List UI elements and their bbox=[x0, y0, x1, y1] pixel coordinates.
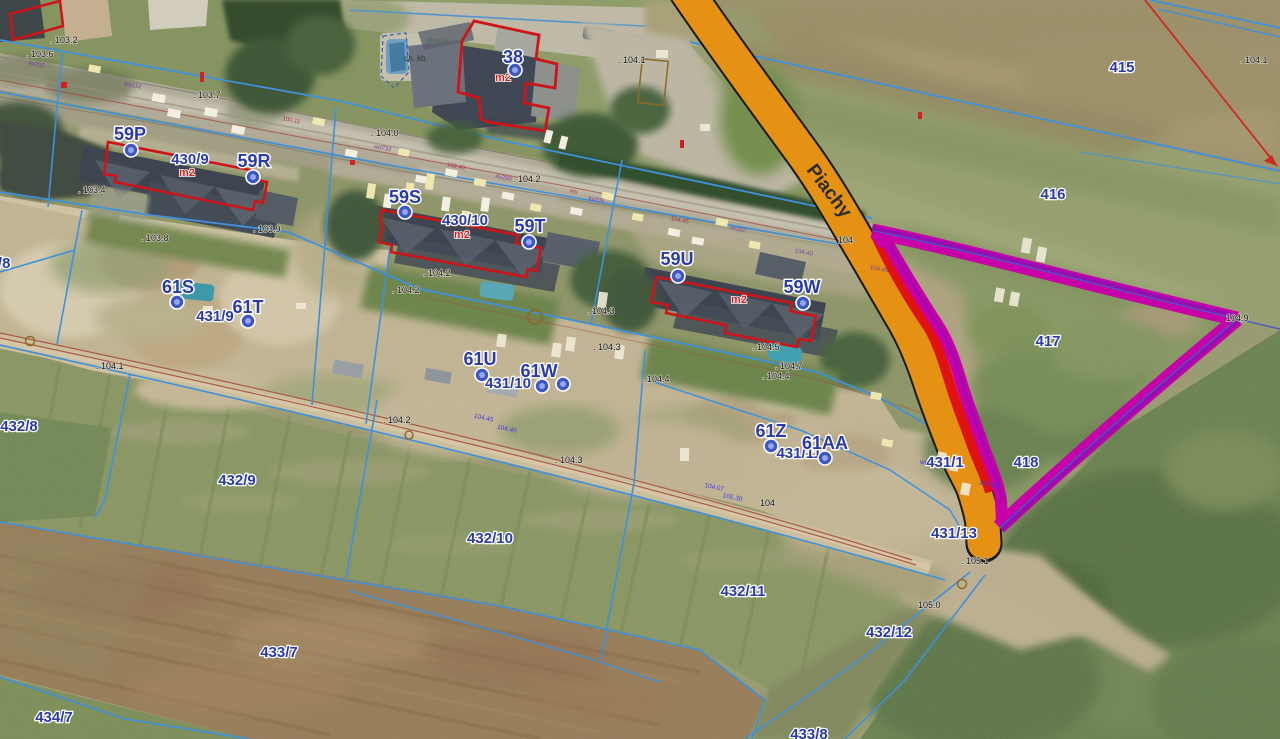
svg-text:59T: 59T bbox=[514, 216, 545, 236]
svg-text:. 104.1: . 104.1 bbox=[618, 55, 646, 65]
svg-text:432/10: 432/10 bbox=[467, 530, 513, 547]
svg-text:104.9: 104.9 bbox=[1226, 313, 1249, 323]
svg-text:431/1: 431/1 bbox=[926, 454, 964, 471]
svg-text:. 104.0: . 104.0 bbox=[371, 128, 399, 138]
svg-text:61W: 61W bbox=[520, 361, 557, 381]
svg-text:418: 418 bbox=[1013, 454, 1038, 471]
svg-text:. 103.8: . 103.8 bbox=[141, 233, 169, 243]
svg-text:61U: 61U bbox=[463, 349, 496, 369]
svg-text:. 103.2: . 103.2 bbox=[50, 35, 78, 45]
svg-text:415: 415 bbox=[1109, 59, 1134, 76]
svg-text:. 104.3: . 104.3 bbox=[587, 306, 615, 316]
svg-text:105.0: 105.0 bbox=[918, 600, 941, 610]
svg-text:. 104.2: . 104.2 bbox=[383, 415, 411, 425]
svg-text:59U: 59U bbox=[660, 249, 693, 269]
svg-text:59R: 59R bbox=[237, 151, 270, 171]
svg-text:434/7: 434/7 bbox=[35, 709, 73, 726]
svg-text:. 103.9: . 103.9 bbox=[253, 224, 281, 234]
svg-text:104: 104 bbox=[838, 235, 853, 245]
svg-text:. 104.7: . 104.7 bbox=[775, 361, 803, 371]
svg-text:432/11: 432/11 bbox=[720, 583, 765, 600]
svg-text:. 104.1: . 104.1 bbox=[1240, 55, 1268, 65]
svg-text:m2: m2 bbox=[454, 229, 470, 241]
svg-text:. 104.2: . 104.2 bbox=[392, 285, 420, 295]
svg-text:. 103.7: . 103.7 bbox=[193, 90, 221, 100]
svg-text:1/8: 1/8 bbox=[0, 255, 10, 272]
svg-text:104: 104 bbox=[760, 498, 775, 508]
svg-text:. 104.4: . 104.4 bbox=[642, 374, 670, 384]
svg-text:430/10: 430/10 bbox=[442, 212, 488, 229]
svg-text:. 104.2: . 104.2 bbox=[513, 174, 541, 184]
svg-text:59P: 59P bbox=[114, 124, 146, 144]
svg-text:432/12: 432/12 bbox=[866, 624, 912, 641]
svg-text:. 104.1: . 104.1 bbox=[96, 361, 124, 371]
svg-text:. 105.1: . 105.1 bbox=[961, 556, 989, 566]
svg-text:432/9: 432/9 bbox=[218, 472, 256, 489]
svg-text:. 104.2: . 104.2 bbox=[423, 268, 451, 278]
svg-text:. 104.4: . 104.4 bbox=[762, 371, 790, 381]
svg-text:61AA: 61AA bbox=[802, 433, 848, 453]
svg-text:430/9: 430/9 bbox=[171, 151, 209, 168]
svg-text:417: 417 bbox=[1035, 333, 1060, 350]
svg-text:. 104.3: . 104.3 bbox=[593, 342, 621, 352]
svg-text:61S: 61S bbox=[162, 277, 194, 297]
svg-text:. 104.3: . 104.3 bbox=[555, 455, 583, 465]
svg-text:431/9: 431/9 bbox=[196, 308, 234, 325]
svg-text:. 103.6: . 103.6 bbox=[26, 49, 54, 59]
svg-text:m2: m2 bbox=[731, 294, 747, 306]
svg-text:433/8: 433/8 bbox=[790, 726, 828, 739]
svg-text:. 104.5: . 104.5 bbox=[752, 342, 780, 352]
svg-text:59S: 59S bbox=[389, 187, 421, 207]
svg-text:431/13: 431/13 bbox=[931, 525, 977, 542]
svg-text:416: 416 bbox=[1040, 186, 1065, 203]
svg-text:59W: 59W bbox=[783, 277, 820, 297]
svg-text:ch. kb.: ch. kb. bbox=[404, 54, 428, 63]
svg-text:433/7: 433/7 bbox=[260, 644, 298, 661]
svg-text:. 103.4: . 103.4 bbox=[78, 185, 106, 195]
svg-text:m2: m2 bbox=[179, 167, 195, 179]
svg-text:61Z: 61Z bbox=[755, 421, 786, 441]
svg-text:432/8: 432/8 bbox=[0, 418, 38, 435]
